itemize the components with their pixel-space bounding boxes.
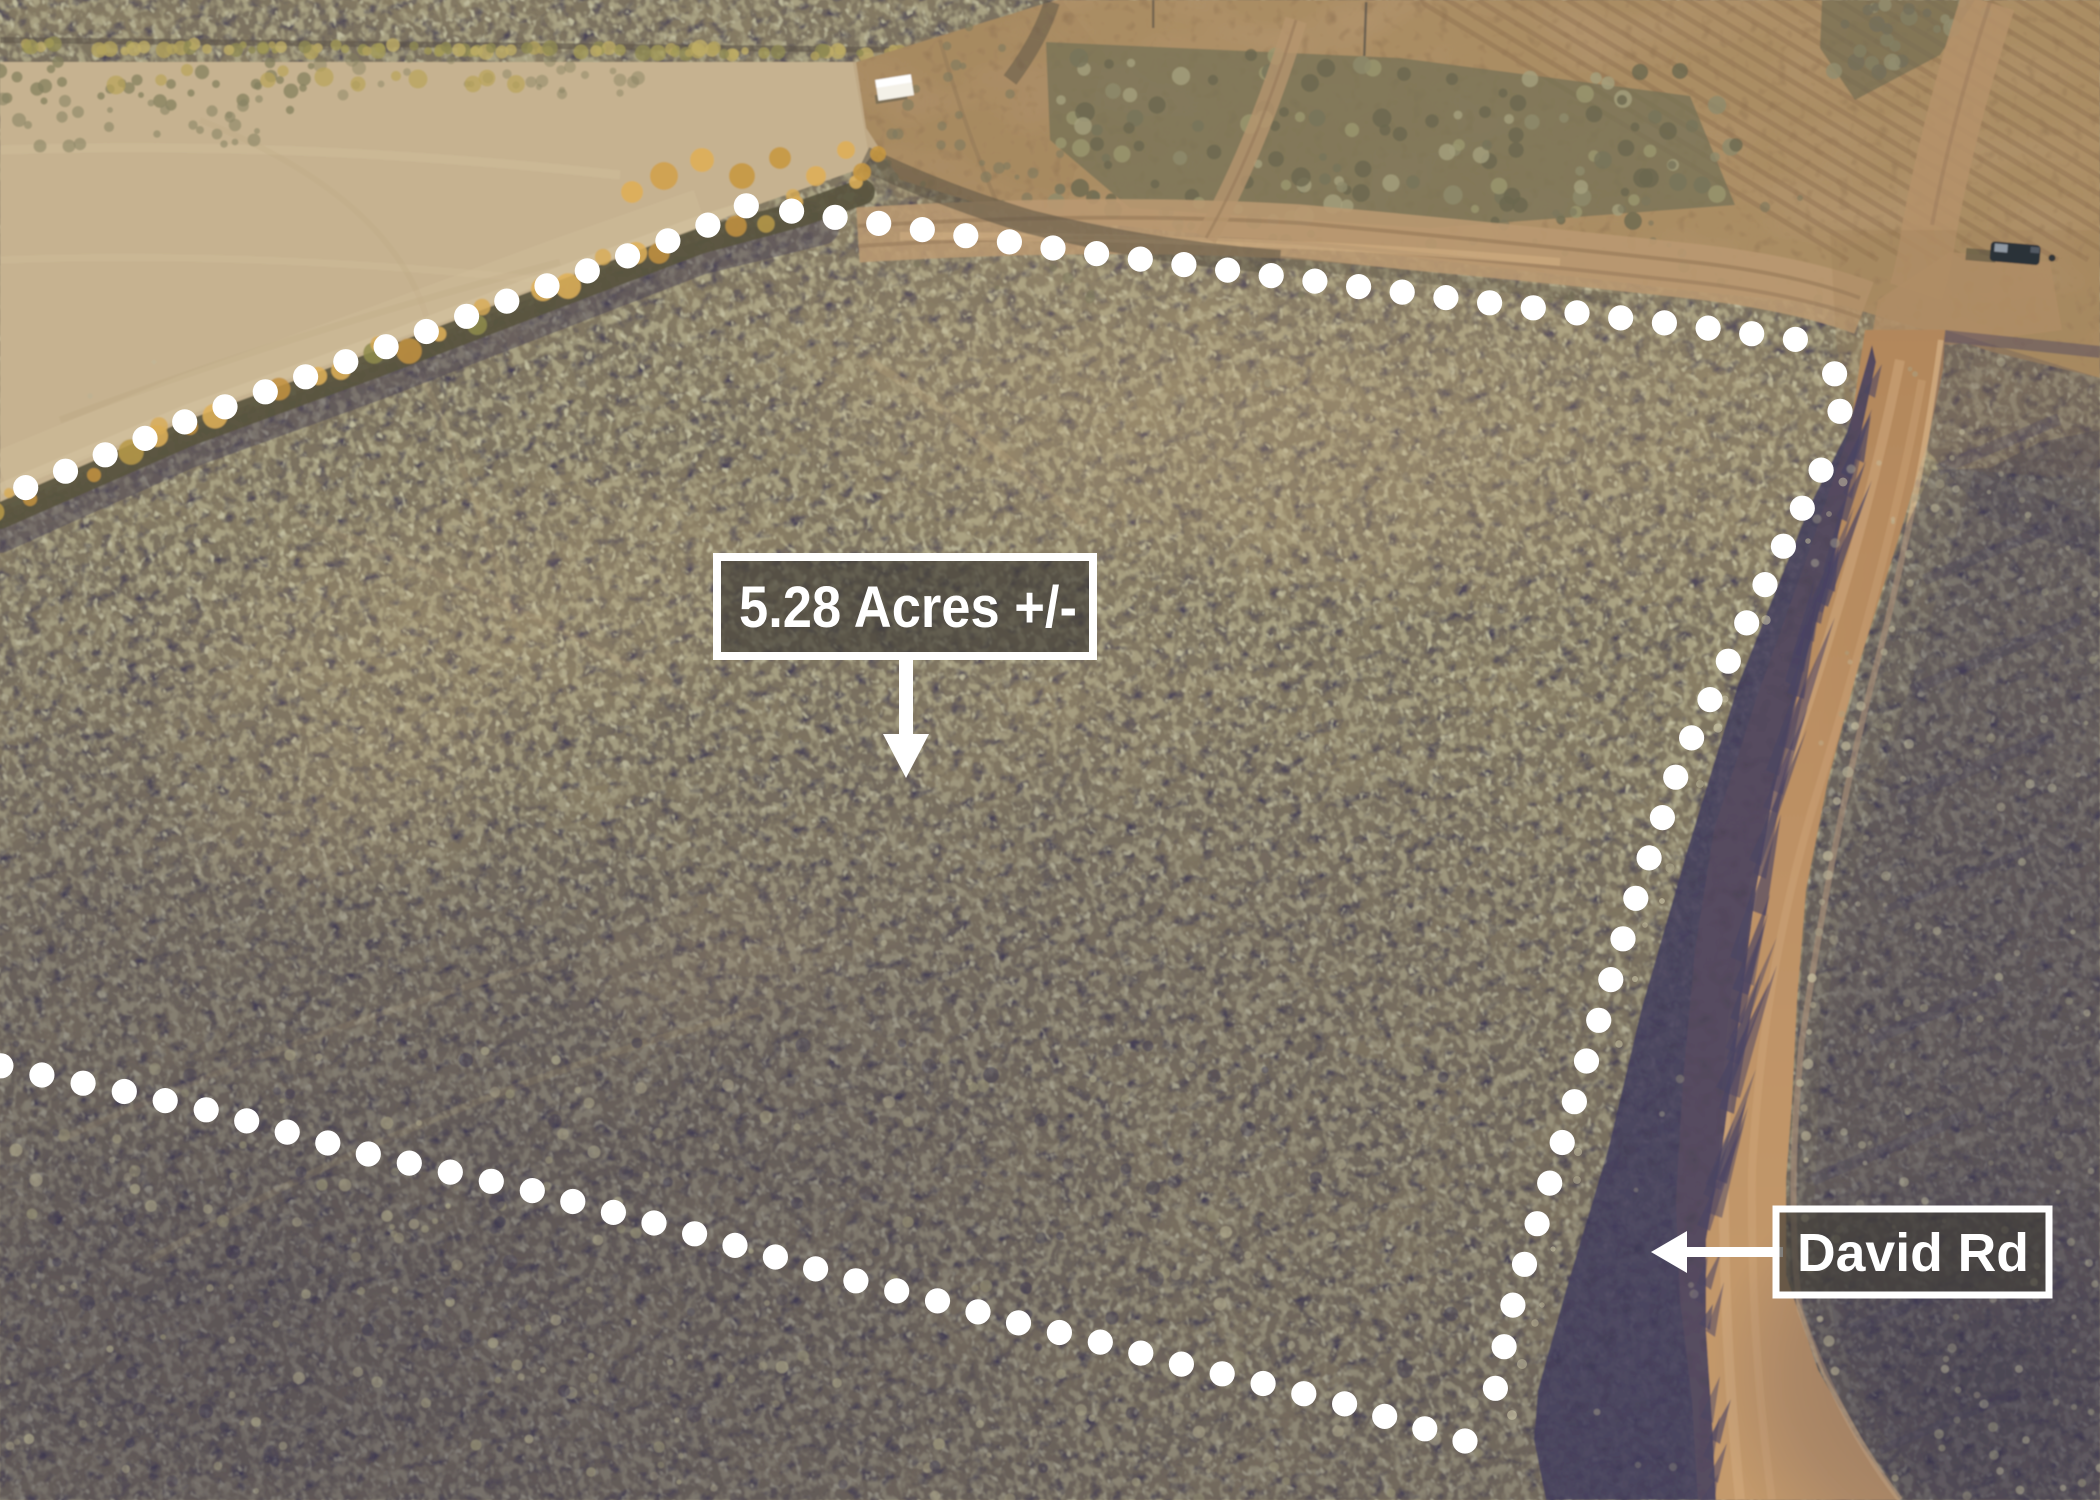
svg-text:David Rd: David Rd <box>1797 1223 2029 1283</box>
svg-text:5.28 Acres +/-: 5.28 Acres +/- <box>739 575 1077 640</box>
